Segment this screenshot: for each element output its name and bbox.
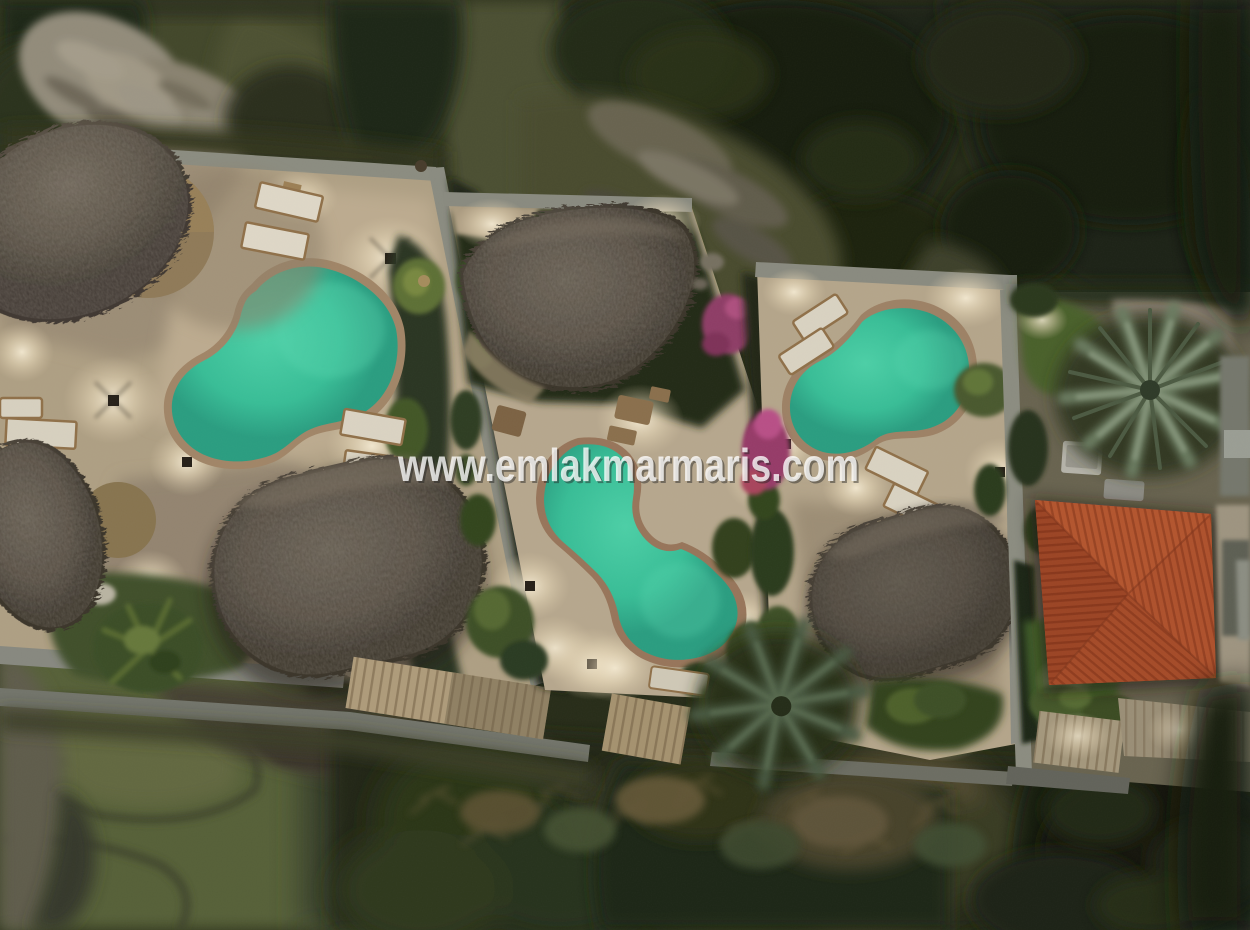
svg-text:www.emlakmarmaris.com: www.emlakmarmaris.com <box>397 439 859 491</box>
